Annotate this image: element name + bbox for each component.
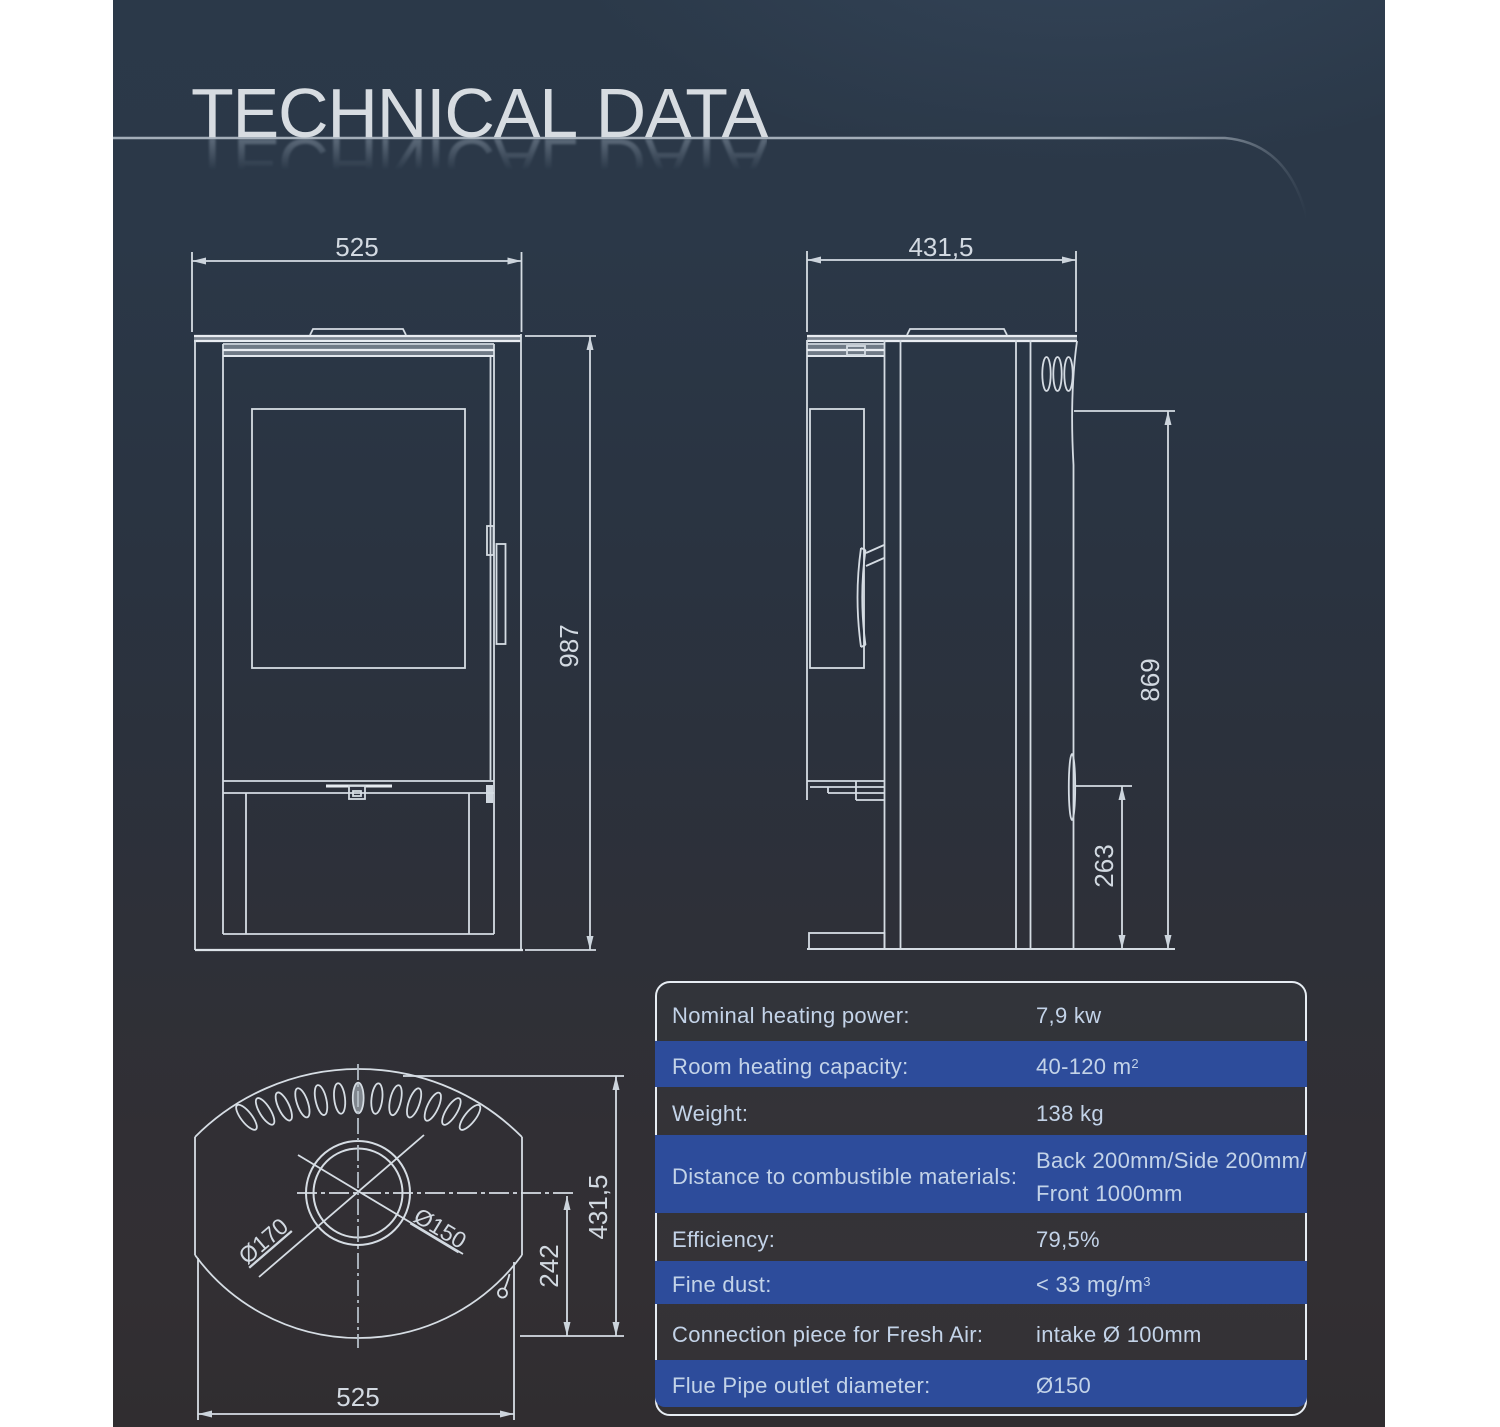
svg-text:242: 242	[534, 1244, 564, 1287]
svg-text:525: 525	[335, 232, 378, 262]
svg-text:Ø170: Ø170	[233, 1213, 293, 1269]
svg-text:987: 987	[554, 624, 584, 667]
svg-text:525: 525	[336, 1382, 379, 1412]
svg-text:263: 263	[1089, 844, 1119, 887]
svg-text:431,5: 431,5	[583, 1174, 613, 1239]
svg-text:Ø150: Ø150	[409, 1203, 471, 1254]
svg-text:431,5: 431,5	[908, 232, 973, 262]
svg-text:869: 869	[1135, 658, 1165, 701]
